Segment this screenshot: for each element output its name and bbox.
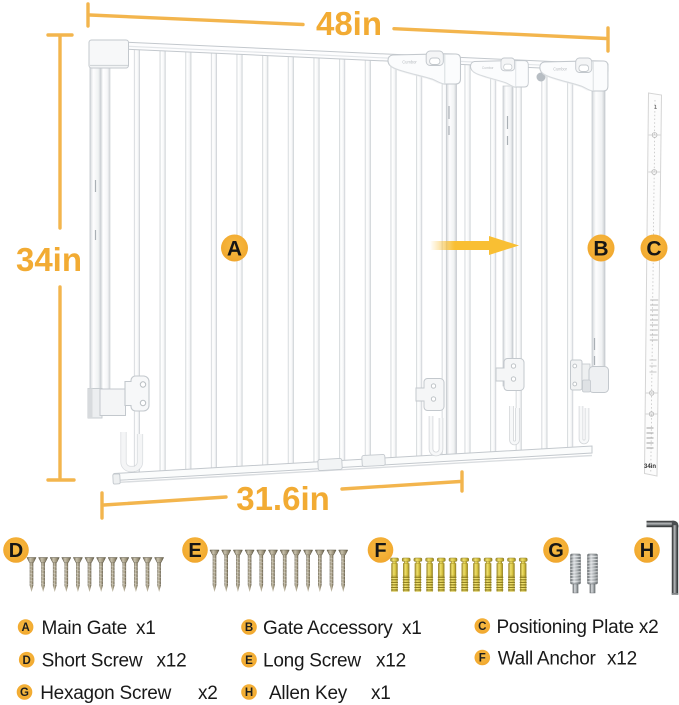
svg-text:B: B [593, 238, 608, 261]
svg-text:H: H [640, 540, 654, 562]
svg-text:x1: x1 [136, 618, 156, 639]
svg-text:B: B [245, 622, 253, 634]
svg-text:G: G [548, 540, 564, 562]
svg-text:Wall Anchor: Wall Anchor [498, 649, 597, 670]
svg-text:D: D [23, 655, 31, 667]
svg-text:Cumbor: Cumbor [482, 66, 494, 70]
svg-text:G: G [20, 687, 29, 699]
svg-text:1: 1 [654, 105, 657, 111]
svg-text:F: F [479, 653, 486, 665]
svg-text:34in: 34in [644, 464, 656, 470]
svg-text:D: D [9, 540, 23, 562]
svg-text:34in: 34in [16, 241, 82, 278]
svg-text:H: H [245, 687, 253, 699]
svg-text:Hexagon Screw: Hexagon Screw [40, 683, 171, 704]
svg-text:A: A [21, 622, 29, 634]
svg-text:31.6in: 31.6in [236, 480, 330, 517]
svg-text:x12: x12 [157, 651, 187, 672]
svg-text:Main Gate: Main Gate [42, 618, 127, 639]
svg-text:Short Screw: Short Screw [42, 651, 143, 672]
svg-text:E: E [245, 655, 253, 667]
svg-text:Cumbor: Cumbor [553, 66, 567, 71]
svg-text:Long Screw: Long Screw [263, 651, 361, 672]
svg-text:C: C [478, 621, 486, 633]
svg-text:A: A [227, 238, 242, 261]
svg-text:Positioning Plate x2: Positioning Plate x2 [497, 617, 659, 638]
svg-text:48in: 48in [316, 5, 382, 42]
svg-text:F: F [374, 540, 386, 562]
svg-text:x1: x1 [371, 683, 391, 704]
svg-text:Cumbor: Cumbor [402, 59, 417, 64]
svg-text:x2: x2 [198, 683, 218, 704]
svg-text:x12: x12 [607, 649, 637, 670]
svg-text:E: E [188, 540, 201, 562]
svg-text:C: C [646, 238, 661, 261]
svg-text:Allen Key: Allen Key [269, 683, 348, 704]
svg-text:x1: x1 [402, 618, 422, 639]
svg-text:Gate Accessory: Gate Accessory [263, 618, 393, 639]
svg-text:x12: x12 [376, 651, 406, 672]
